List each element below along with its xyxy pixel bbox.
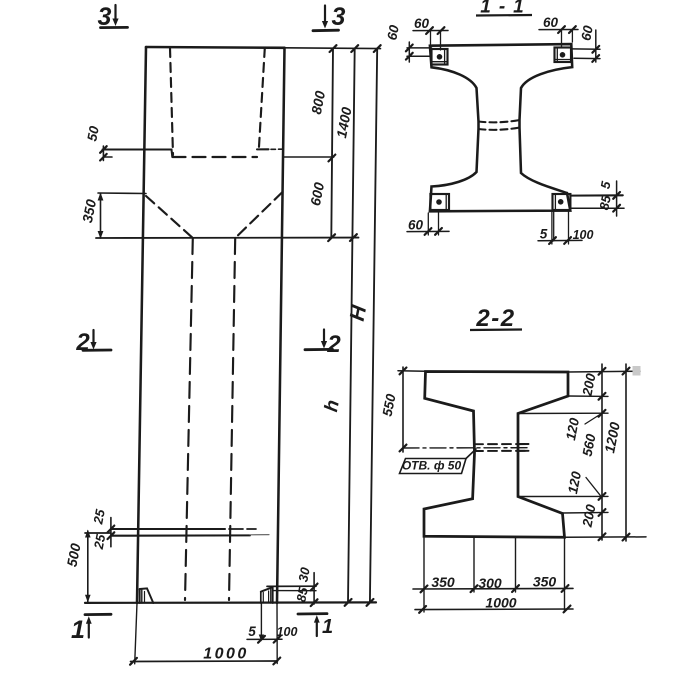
svg-text:2: 2 (326, 331, 341, 358)
svg-text:120: 120 (565, 470, 584, 495)
svg-text:100: 100 (277, 625, 298, 639)
svg-text:25: 25 (90, 507, 108, 526)
svg-text:500: 500 (64, 542, 84, 568)
svg-text:5: 5 (248, 624, 256, 639)
svg-text:2: 2 (75, 329, 90, 356)
svg-text:350: 350 (533, 574, 557, 590)
svg-text:50: 50 (84, 124, 102, 142)
svg-text:550: 550 (380, 392, 399, 417)
svg-text:350: 350 (79, 198, 99, 224)
svg-text:H: H (346, 303, 372, 323)
svg-text:300: 300 (478, 575, 502, 591)
svg-text:600: 600 (307, 181, 327, 207)
svg-text:60: 60 (578, 24, 596, 42)
svg-text:60: 60 (408, 218, 424, 233)
svg-text:800: 800 (308, 89, 328, 115)
svg-text:350: 350 (431, 574, 455, 590)
svg-text:200: 200 (579, 503, 598, 529)
svg-text:3: 3 (98, 3, 112, 31)
svg-text:ОТВ. ф 50: ОТВ. ф 50 (402, 459, 462, 473)
svg-text:1200: 1200 (601, 421, 623, 455)
svg-text:60: 60 (384, 23, 402, 41)
svg-text:120: 120 (563, 416, 582, 441)
svg-text:2-2: 2-2 (475, 305, 515, 332)
svg-text:h: h (321, 398, 344, 413)
svg-text:200: 200 (579, 372, 598, 398)
svg-text:1000: 1000 (203, 646, 249, 663)
svg-text:5: 5 (598, 179, 614, 190)
svg-text:560: 560 (580, 432, 599, 457)
svg-text:85: 85 (293, 585, 311, 603)
svg-text:60: 60 (414, 16, 430, 31)
svg-text:1: 1 (322, 616, 333, 638)
svg-text:100: 100 (573, 228, 594, 242)
svg-text:60: 60 (543, 15, 559, 30)
svg-text:3: 3 (332, 3, 346, 31)
svg-text:1: 1 (71, 616, 85, 644)
svg-text:30: 30 (295, 565, 313, 583)
svg-text:1000: 1000 (485, 595, 516, 611)
svg-text:5: 5 (540, 227, 548, 242)
svg-text:25: 25 (91, 532, 109, 551)
svg-text:1400: 1400 (333, 106, 355, 140)
